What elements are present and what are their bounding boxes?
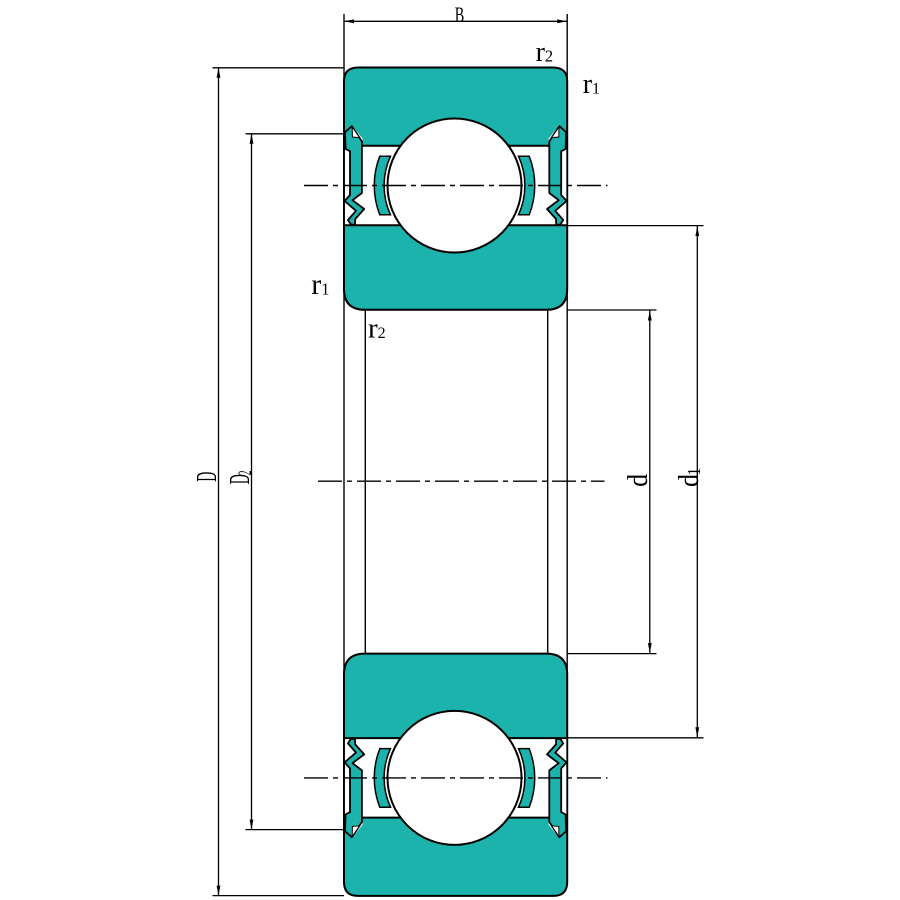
- svg-text:B: B: [455, 3, 465, 28]
- svg-text:D: D: [191, 472, 223, 482]
- svg-text:d: d: [621, 474, 654, 487]
